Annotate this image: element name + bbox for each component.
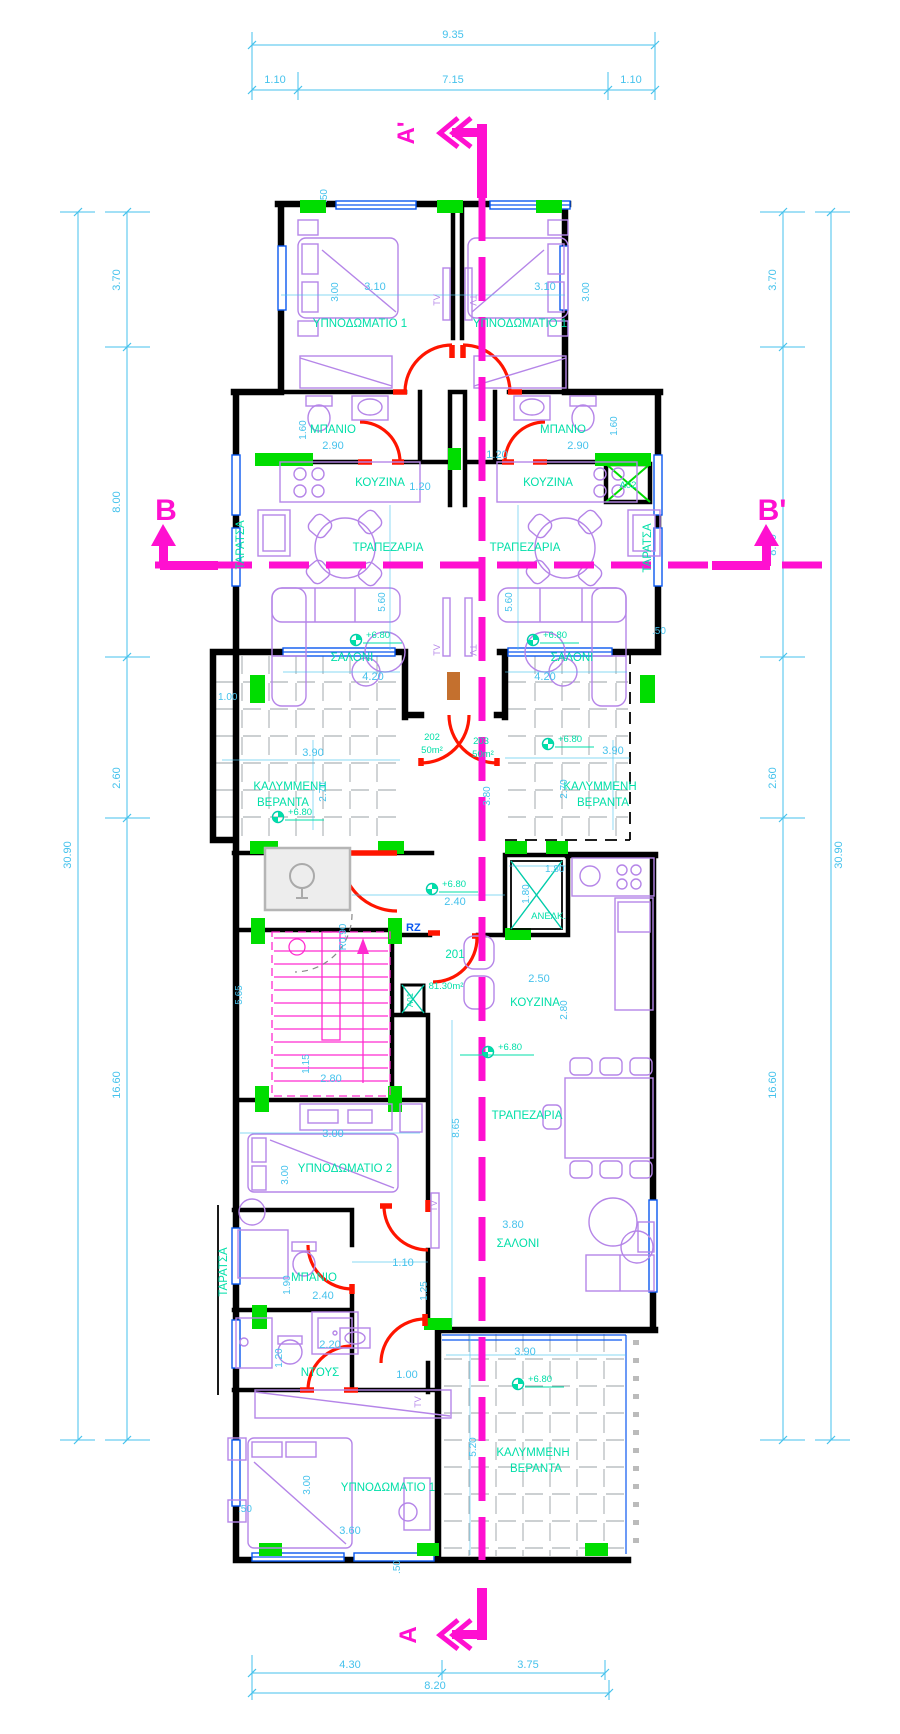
dim-bottom-total: 8.20 [424,1680,445,1692]
dim-560-right: 5.60 [504,592,515,612]
room-veranda-right-2: ΒΕΡΑΝΤΑ [577,797,629,809]
dim-050-bed1: .50 [238,1504,252,1515]
dim-bottom-left: 4.30 [339,1659,360,1671]
dim-110-hall: 1.10 [392,1257,413,1269]
wc-room [265,848,350,910]
level-text: +6.80 [498,1042,522,1053]
room-bedroom2: ΥΠΝΟΔΩΜΑΤΙΟ 2 [298,1163,392,1175]
dim-050-top: .50 [319,189,330,203]
dim-left-total: 30.90 [62,841,74,869]
label-rz: RZ [406,922,421,934]
section-lines: A' A B B' [151,118,838,1649]
apt-202-number: 202 [424,732,440,743]
dim-top-body: 7.15 [442,74,463,86]
room-veranda-left-1: ΚΑΛΥΜΜΕΝΗ [253,781,326,793]
tv-label: TV [429,1200,439,1212]
dim-310-right: 3.10 [534,281,555,293]
dim-left-1660: 16.60 [111,1071,123,1099]
dim-right-1660: 16.60 [767,1071,779,1099]
section-marker-A-top: A' [393,118,487,198]
level-text: +6.80 [442,879,466,890]
dim-280-kitchen201: 2.80 [559,1000,570,1020]
level-text: +6.80 [528,1374,552,1385]
dim-left-800: 8.00 [111,491,123,512]
dim-top-left-wing: 1.10 [264,74,285,86]
dim-180-elev-w: 1.80 [545,864,565,875]
room-bath-bottom: ΜΠΑΝΙΟ [291,1272,337,1284]
dim-220-ntous: 2.20 [319,1339,340,1351]
dim-100-veranda: 1.00 [218,692,238,703]
dim-290-left: 2.90 [322,440,343,452]
section-label-A-bottom: A [395,1626,422,1643]
floor-plan-canvas: 9.35 1.10 7.15 1.10 4.30 3.75 8.20 3.70 … [0,0,900,1734]
room-salon-left: ΣΑΛΟΝΙ [331,652,374,664]
label-shaft-a02: Α02 [620,480,637,491]
dim-120-ntous: 1.20 [274,1348,285,1368]
terrace-bottom-left: ΤΑΡΑΤΣΑ [218,1247,230,1297]
tv-label: TV [432,644,442,656]
level-text: +6.80 [366,630,390,641]
stair-direction-arrow-icon [357,938,369,954]
dim-right-total: 30.90 [833,841,845,869]
dim-top-right-wing: 1.10 [620,74,641,86]
level-text: +6.80 [558,734,582,745]
dim-250-kitchen201: 2.50 [528,973,549,985]
dim-300-left: 3.00 [330,282,341,302]
dim-280-stairs: 2.80 [320,1073,341,1085]
dim-125-hall: 1.25 [419,1281,430,1301]
room-kitchen-201: ΚΟΥΖΙΝΑ [510,997,560,1009]
room-kitchen-right: ΚΟΥΖΙΝΑ [523,477,573,489]
dim-420-left: 4.20 [362,671,383,683]
room-salon-201: ΣΑΛΟΝΙ [497,1238,540,1250]
apt-203-number: 203 [473,736,489,747]
label-shaft-a01: Α01 [406,992,415,1007]
dim-050-bottom: .50 [392,1560,403,1574]
section-label-B: B [155,494,177,527]
room-veranda-bottom-2: ΒΕΡΑΝΤΑ [510,1463,562,1475]
dim-300-bed1: 3.00 [302,1475,313,1495]
accent-panel [447,672,460,700]
dim-290-right: 2.90 [567,440,588,452]
dim-420-right: 4.20 [534,671,555,683]
room-dining-201: ΤΡΑΠΕΖΑΡΙΑ [492,1110,563,1122]
section-marker-B-left: B [151,494,218,570]
dim-390-left: 3.90 [302,747,323,759]
apt-201-area: 81.30m² [429,981,464,992]
room-veranda-right-1: ΚΑΛΥΜΜΕΝΗ [563,781,636,793]
dim-115-stairs: 1.15 [301,1054,312,1074]
section-label-B-right: B' [758,494,787,527]
level-marker-icon: +6.80 [460,1042,534,1058]
apt-202-area: 50m² [421,745,443,756]
dim-300-bed2-w: 3.00 [322,1128,343,1140]
dim-160-left: 1.60 [298,420,309,440]
room-salon-right: ΣΑΛΟΝΙ [551,652,594,664]
dim-390-veranda-bottom: 3.90 [514,1346,535,1358]
room-elevator: ΑΝΕΛΚ. [531,911,566,922]
apt-201-number: 201 [445,949,464,961]
level-marker-icon: +6.80 [273,807,325,823]
tv-label: TV [432,294,442,306]
dim-r090: R0.90 [338,923,349,950]
room-kitchen-left: ΚΟΥΖΙΝΑ [355,477,405,489]
staircase [272,932,390,1096]
room-bath-right: ΜΠΑΝΙΟ [540,424,586,436]
dim-overall-top: 9.35 [442,29,463,41]
dim-390-right: 3.90 [602,745,623,757]
room-dining-left: ΤΡΑΠΕΖΑΡΙΑ [353,542,424,554]
dim-360-bed1: 3.60 [339,1525,360,1537]
room-shower: ΝΤΟΥΣ [301,1367,339,1379]
dim-380-lobby: 3.80 [482,786,493,806]
tv-label: TV [413,1396,423,1408]
terrace-left: ΤΑΡΑΤΣΑ [235,520,247,570]
arrow-up-icon [151,524,176,546]
dim-050-right: .50 [652,626,666,637]
dim-520-veranda-bottom: 5.20 [468,1437,479,1457]
level-marker-icon: +6.80 [351,630,403,646]
room-veranda-bottom-1: ΚΑΛΥΜΜΕΝΗ [496,1447,569,1459]
dim-right-260: 2.60 [767,767,779,788]
tv-label: TV [468,294,478,306]
room-bath-left: ΜΠΑΝΙΟ [310,424,356,436]
dim-240-bath: 2.40 [312,1290,333,1302]
floor-plan-svg: 9.35 1.10 7.15 1.10 4.30 3.75 8.20 3.70 … [0,0,900,1734]
dim-865-201: 8.65 [451,1118,462,1138]
dim-560-left: 5.60 [377,592,388,612]
dim-left-370: 3.70 [111,269,123,290]
room-bedroom1-left: ΥΠΝΟΔΩΜΑΤΙΟ 1 [313,318,407,330]
level-text: +6.80 [543,630,567,641]
terrace-right: ΤΑΡΑΤΣΑ [642,523,654,573]
dim-bottom-right: 3.75 [517,1659,538,1671]
room-veranda-left-2: ΒΕΡΑΝΤΑ [257,797,309,809]
dim-right-370: 3.70 [767,269,779,290]
dim-100-ntous: 1.00 [396,1369,417,1381]
room-bedroom1-right: ΥΠΝΟΔΩΜΑΤΙΟ 1 [473,318,567,330]
level-marker-icon: +6.80 [513,1374,565,1390]
dim-left-260: 2.60 [111,767,123,788]
dim-300-right: 3.00 [581,282,592,302]
section-label-A-top: A' [393,121,420,144]
dim-270-left: 2.70 [318,782,329,802]
dim-270-right: 2.70 [559,779,570,799]
level-marker-icon: +6.80 [528,630,580,646]
dim-120-left: 1.20 [409,481,430,493]
dim-240-corridor: 2.40 [444,896,465,908]
level-marker-icon: +6.80 [427,879,479,895]
dim-300-bed2-h: 3.00 [280,1165,291,1185]
tv-label: TV [468,644,478,656]
section-marker-A-bottom: A [395,1588,487,1649]
room-bedroom1-bottom: ΥΠΝΟΔΩΜΑΤΙΟ 1 [341,1482,435,1494]
room-dining-right: ΤΡΑΠΕΖΑΡΙΑ [490,542,561,554]
dim-565-stairs: 5.65 [234,985,245,1005]
dim-180-elev-h: 1.80 [521,884,532,904]
section-marker-B-right: B' [712,494,786,570]
dim-160-right: 1.60 [609,416,620,436]
dim-190-bath: 1.90 [282,1275,293,1295]
dim-310-left: 3.10 [364,281,385,293]
dim-380-salon201: 3.80 [502,1219,523,1231]
apt-203-area: 50m² [472,749,494,760]
dim-120-center: 1.20 [486,449,507,461]
